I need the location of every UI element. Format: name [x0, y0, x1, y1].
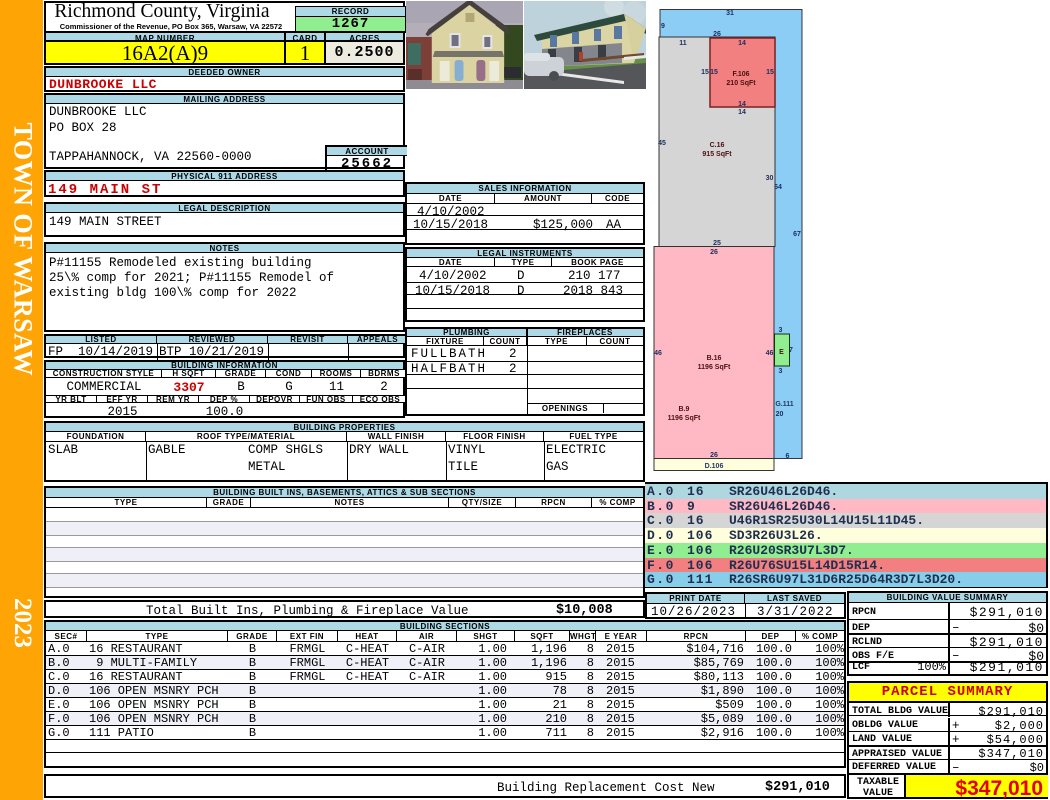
svg-text:64: 64 [774, 184, 782, 191]
svg-text:915 SqFt: 915 SqFt [702, 151, 732, 158]
svg-text:3: 3 [779, 327, 783, 334]
svg-text:6: 6 [786, 453, 790, 460]
svg-text:210 SqFt: 210 SqFt [726, 80, 756, 87]
svg-text:26: 26 [710, 249, 718, 256]
svg-text:15: 15 [701, 69, 709, 76]
svg-text:46: 46 [766, 350, 774, 357]
svg-text:26: 26 [713, 31, 721, 38]
svg-text:D.106: D.106 [705, 463, 724, 470]
svg-text:F.106: F.106 [732, 71, 749, 78]
svg-text:26: 26 [710, 452, 718, 459]
svg-text:67: 67 [793, 231, 801, 238]
svg-text:1196 SqFt: 1196 SqFt [668, 415, 701, 422]
svg-text:E: E [779, 349, 784, 356]
svg-text:14: 14 [738, 40, 746, 47]
svg-text:46: 46 [654, 350, 662, 357]
svg-text:25: 25 [713, 240, 721, 247]
svg-text:G.111: G.111 [775, 401, 793, 408]
svg-text:9: 9 [661, 23, 665, 30]
svg-text:B.16: B.16 [707, 355, 722, 362]
svg-text:15: 15 [710, 69, 718, 76]
svg-text:11: 11 [679, 40, 687, 47]
svg-text:14: 14 [738, 101, 746, 108]
svg-text:31: 31 [726, 10, 734, 17]
svg-text:7: 7 [789, 347, 793, 354]
svg-text:3: 3 [779, 368, 783, 375]
svg-text:14: 14 [738, 109, 746, 116]
svg-text:45: 45 [658, 140, 666, 147]
svg-text:30: 30 [766, 175, 774, 182]
svg-text:C.16: C.16 [710, 142, 725, 149]
svg-text:B.9: B.9 [679, 406, 690, 413]
svg-text:15: 15 [766, 69, 774, 76]
svg-text:20: 20 [776, 411, 784, 418]
svg-text:1196 SqFt: 1196 SqFt [698, 364, 731, 371]
